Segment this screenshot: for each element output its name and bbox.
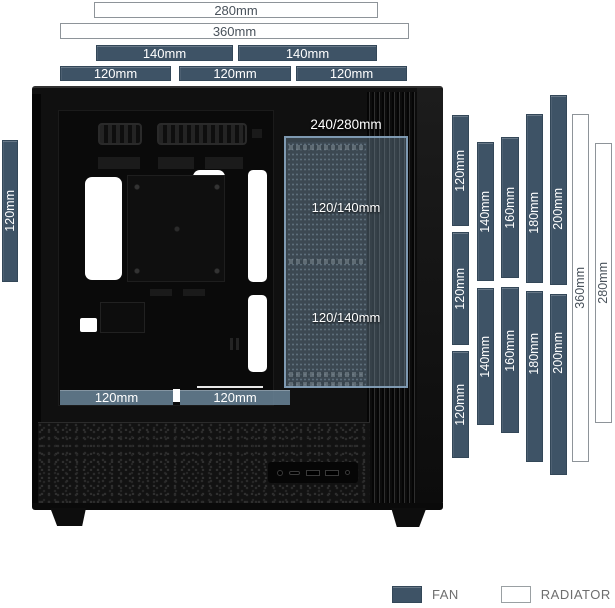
legend: FAN RADIATOR — [392, 585, 611, 603]
dimension-bar-fan-120mm: 120mm — [296, 66, 407, 81]
dimension-bar-fan-180mm: 180mm — [526, 114, 543, 283]
usb-a-port — [306, 470, 320, 476]
dimension-bar-label: 360mm — [213, 25, 256, 38]
side-mount-highlight: 120/140mm 120/140mm — [284, 136, 408, 388]
dimension-bar-label: 120mm — [454, 150, 467, 192]
dimension-bar-fan-140mm: 140mm — [238, 45, 377, 61]
legend-radiator-label: RADIATOR — [541, 587, 611, 602]
power-button — [345, 470, 350, 475]
side-fan-top-label: 120/140mm — [286, 200, 406, 215]
case-base — [32, 503, 443, 510]
dimension-bar-fan-160mm: 160mm — [501, 287, 519, 433]
dimension-bar-label: 120mm — [454, 384, 467, 426]
dimension-bar-label: 120mm — [330, 67, 373, 80]
dimension-bar-case-fan-120mm: 120mm — [180, 390, 290, 405]
bottom-cutout-notch — [173, 389, 180, 402]
dimension-bar-radiator-280mm: 280mm — [595, 143, 612, 423]
dimension-bar-fan-140mm: 140mm — [96, 45, 233, 61]
dimension-bar-label: 280mm — [597, 262, 610, 304]
dimension-bar-label: 180mm — [528, 333, 541, 375]
fan-radiator-compatibility-diagram: 120/140mm 120/140mm 240/280mm 280mm360mm… — [0, 0, 615, 608]
dimension-bar-fan-120mm: 120mm — [452, 232, 469, 345]
case-top-vent-large — [157, 123, 247, 145]
case-detail — [205, 157, 243, 169]
dimension-bar-label: 180mm — [528, 192, 541, 234]
dimension-bar-case-fan-120mm: 120mm — [60, 390, 173, 405]
usb-a-port — [325, 470, 339, 476]
motherboard-tray — [127, 175, 225, 282]
dimension-bar-radiator-360mm: 360mm — [572, 114, 589, 462]
case-detail — [183, 289, 205, 296]
psu-cutout — [80, 318, 97, 332]
dimension-bar-label: 140mm — [479, 191, 492, 233]
dimension-bar-label: 160mm — [504, 330, 517, 372]
case-detail — [252, 129, 262, 138]
case-detail — [150, 289, 172, 296]
case-foot-right — [388, 508, 428, 527]
dimension-bar-label: 200mm — [552, 188, 565, 230]
radiator-swatch-icon — [501, 586, 531, 603]
front-io-panel — [268, 462, 358, 483]
dimension-bar-fan-120mm: 120mm — [452, 351, 469, 458]
dimension-bar-label: 120mm — [454, 268, 467, 310]
dimension-bar-label: 360mm — [574, 267, 587, 309]
usb-c-port — [289, 471, 300, 475]
dimension-bar-fan-180mm: 180mm — [526, 291, 543, 462]
dimension-bar-fan-120mm: 120mm — [2, 140, 18, 282]
dimension-bar-radiator-280mm: 280mm — [94, 2, 378, 18]
case-detail — [98, 157, 140, 169]
dimension-bar-label: 140mm — [143, 47, 186, 60]
dimension-bar-fan-200mm: 200mm — [550, 95, 567, 285]
audio-jack — [277, 470, 283, 476]
case-foot-left — [48, 508, 86, 526]
case-front-face — [417, 88, 443, 506]
dimension-bar-label: 200mm — [552, 332, 565, 374]
dimension-bar-fan-200mm: 200mm — [550, 294, 567, 475]
dimension-bar-label: 280mm — [214, 4, 257, 17]
case-top-vent-small — [98, 123, 142, 145]
dimension-bar-fan-160mm: 160mm — [501, 137, 519, 278]
fan-swatch-icon — [392, 586, 422, 603]
psu-shroud-box — [100, 302, 145, 333]
dimension-bar-label: 160mm — [504, 187, 517, 229]
case-detail — [236, 338, 239, 350]
dimension-bar-label: 120mm — [95, 391, 138, 404]
cable-cutout-left — [85, 177, 122, 280]
cable-cutout-right-top — [248, 170, 267, 282]
case-detail — [158, 157, 194, 169]
dimension-bar-label: 120mm — [213, 391, 256, 404]
dimension-bar-fan-120mm: 120mm — [60, 66, 171, 81]
cable-cutout-right-bottom — [248, 295, 267, 372]
dimension-bar-fan-140mm: 140mm — [477, 288, 494, 425]
case-detail — [230, 338, 233, 350]
dimension-bar-fan-140mm: 140mm — [477, 142, 494, 281]
dimension-bar-fan-120mm: 120mm — [179, 66, 291, 81]
side-fan-bottom-label: 120/140mm — [286, 310, 406, 325]
dimension-bar-label: 120mm — [213, 67, 256, 80]
dimension-bar-fan-120mm: 120mm — [452, 115, 469, 226]
dimension-bar-label: 120mm — [4, 190, 17, 232]
dimension-bar-label: 140mm — [286, 47, 329, 60]
side-radiator-label: 240/280mm — [284, 117, 408, 132]
legend-fan-label: FAN — [432, 587, 459, 602]
dimension-bar-label: 120mm — [94, 67, 137, 80]
dimension-bar-radiator-360mm: 360mm — [60, 23, 409, 39]
bottom-cutout-edge — [197, 386, 263, 388]
dimension-bar-label: 140mm — [479, 336, 492, 378]
